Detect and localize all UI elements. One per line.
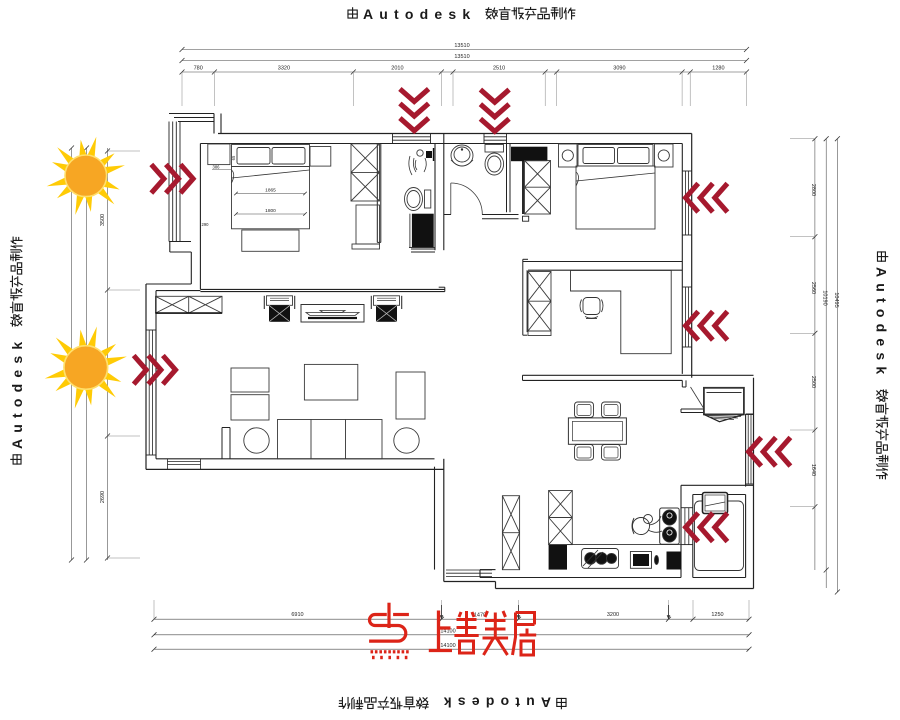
svg-text:3200: 3200 — [607, 612, 619, 618]
svg-text:2560: 2560 — [810, 282, 816, 294]
svg-text:1865: 1865 — [265, 188, 276, 194]
svg-text:14100: 14100 — [440, 643, 455, 649]
svg-text:2510: 2510 — [493, 66, 505, 72]
svg-text:2690: 2690 — [100, 491, 106, 503]
svg-text:6910: 6910 — [291, 612, 303, 618]
svg-text:1800: 1800 — [265, 208, 276, 214]
svg-text:13510: 13510 — [454, 54, 469, 60]
svg-text:2800: 2800 — [810, 184, 816, 196]
svg-text:65: 65 — [231, 155, 236, 160]
svg-text:1640: 1640 — [810, 464, 816, 476]
svg-text:2010: 2010 — [391, 66, 403, 72]
svg-text:10190: 10190 — [822, 290, 828, 305]
svg-text:3320: 3320 — [278, 66, 290, 72]
svg-text:780: 780 — [194, 66, 203, 72]
svg-text:1280: 1280 — [712, 66, 724, 72]
svg-text:386: 386 — [213, 165, 221, 170]
svg-text:290: 290 — [202, 222, 210, 227]
svg-text:3500: 3500 — [100, 214, 106, 226]
svg-text:2500: 2500 — [810, 376, 816, 388]
svg-text:10495: 10495 — [833, 292, 839, 307]
svg-text:1250: 1250 — [711, 612, 723, 618]
svg-text:3090: 3090 — [613, 66, 625, 72]
svg-text:13510: 13510 — [454, 43, 469, 49]
